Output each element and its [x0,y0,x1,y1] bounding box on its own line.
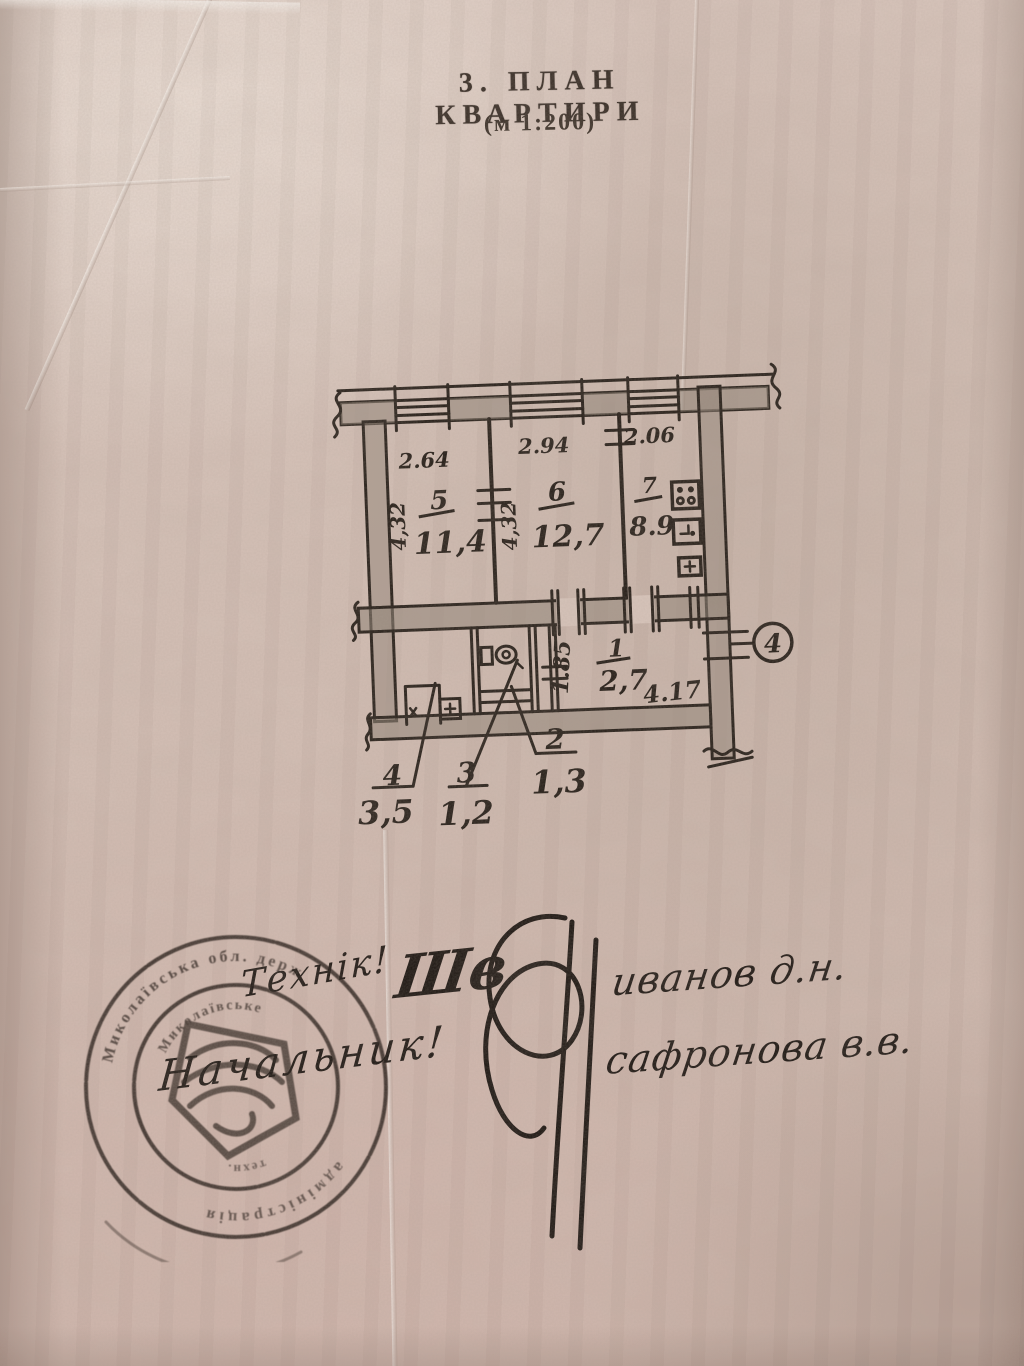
room3-number: 3 [456,756,477,790]
callout-4-number: 4 [763,629,782,660]
room5-area: 11,4 [413,524,487,562]
room7-number: 7 [641,473,658,500]
room2-number: 2 [544,722,566,756]
sink-icon [673,519,701,544]
stamp-inner-text-bottom: техн. [225,1157,268,1177]
dim-room5-width: 2.64 [397,447,450,474]
wall-break-mark [333,393,342,437]
room4-number: 4 [382,759,403,793]
signature-flourish [430,890,650,1290]
dim-room7-width: 2.06 [622,422,675,449]
left-exterior-wall [363,421,397,722]
svg-text:адміністрація: адміністрація [201,1159,348,1227]
room7-area: 8.9 [628,511,675,543]
svg-text:техн.: техн. [225,1157,268,1177]
scanned-document-page: 3. ПЛАН КВАРТИРИ (м 1:200) [0,0,1024,1366]
dim-room6-width: 2.94 [517,432,570,459]
stamp-smear-arc [106,1222,301,1262]
wall-break-mark [771,364,780,408]
heater-icon [679,557,702,576]
dim-mid-height: 4,32 [496,501,522,551]
room2-area: 1,3 [530,762,587,802]
dim-left-height: 4,32 [385,501,411,551]
dim-corridor-height: 1.85 [548,640,577,695]
room4-area: 3,5 [357,792,414,832]
floor-plan-drawing: 2.64 2.94 2.06 4,32 4,32 5 11,4 6 12,7 7… [309,338,838,857]
stove-icon [672,481,700,509]
stamp-ring-text-bottom: адміністрація [201,1159,348,1227]
room6-area: 12,7 [531,518,605,556]
middle-interior-wall [351,584,729,642]
room3-area: 1,2 [437,793,494,833]
